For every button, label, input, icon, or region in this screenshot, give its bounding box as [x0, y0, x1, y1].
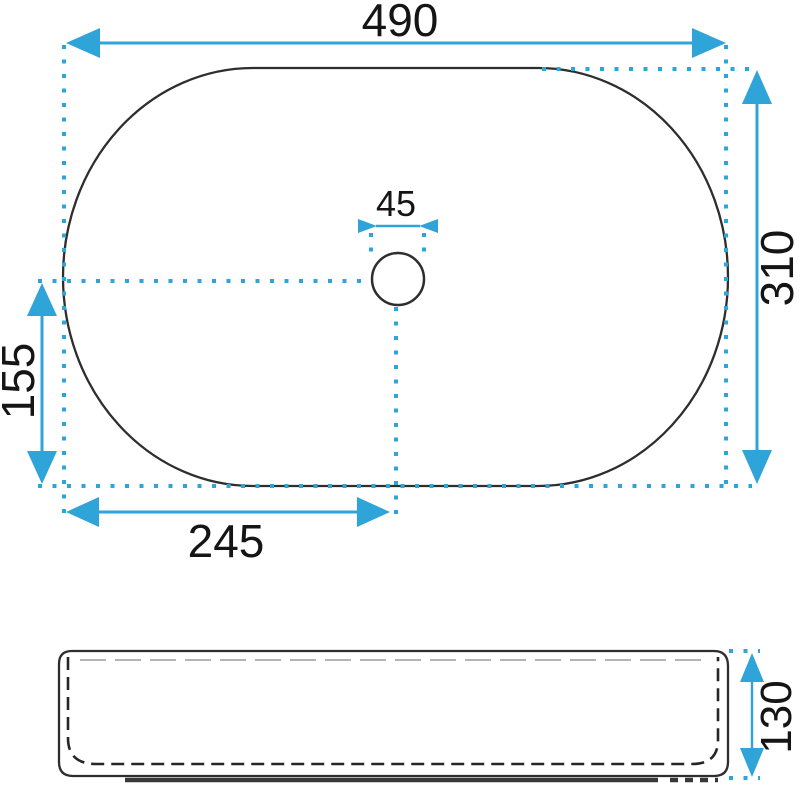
arrow-down-icon — [27, 451, 57, 484]
top-view: 490 310 45 155 — [0, 0, 800, 567]
arrow-up-icon — [740, 653, 764, 682]
dim-drain-label: 45 — [376, 183, 416, 224]
dim-height: 130 — [740, 653, 800, 777]
dim-horizontal-offset-label: 245 — [188, 515, 265, 567]
arrow-down-icon — [742, 450, 772, 484]
dim-horizontal-offset: 245 — [66, 497, 390, 567]
dim-width: 490 — [66, 0, 726, 58]
dim-depth: 310 — [742, 70, 800, 484]
arrow-left-icon — [66, 497, 99, 527]
dim-vertical-offset-label: 155 — [0, 343, 44, 420]
arrow-right-icon — [357, 497, 390, 527]
dim-height-label: 130 — [752, 680, 800, 753]
sink-technical-drawing: 490 310 45 155 — [0, 0, 800, 786]
side-view: 130 — [59, 651, 800, 780]
drain-hole — [372, 253, 424, 305]
drawing-svg: 490 310 45 155 — [0, 0, 800, 786]
dim-width-label: 490 — [362, 0, 439, 46]
arrow-right-icon — [692, 28, 726, 58]
arrow-up-icon — [742, 70, 772, 104]
arrow-left-icon — [66, 28, 100, 58]
inner-bowl-dashed-line — [68, 657, 718, 764]
dim-depth-label: 310 — [751, 230, 800, 307]
side-outline — [59, 651, 728, 776]
arrow-up-icon — [27, 283, 57, 316]
dim-vertical-offset: 155 — [0, 283, 57, 484]
